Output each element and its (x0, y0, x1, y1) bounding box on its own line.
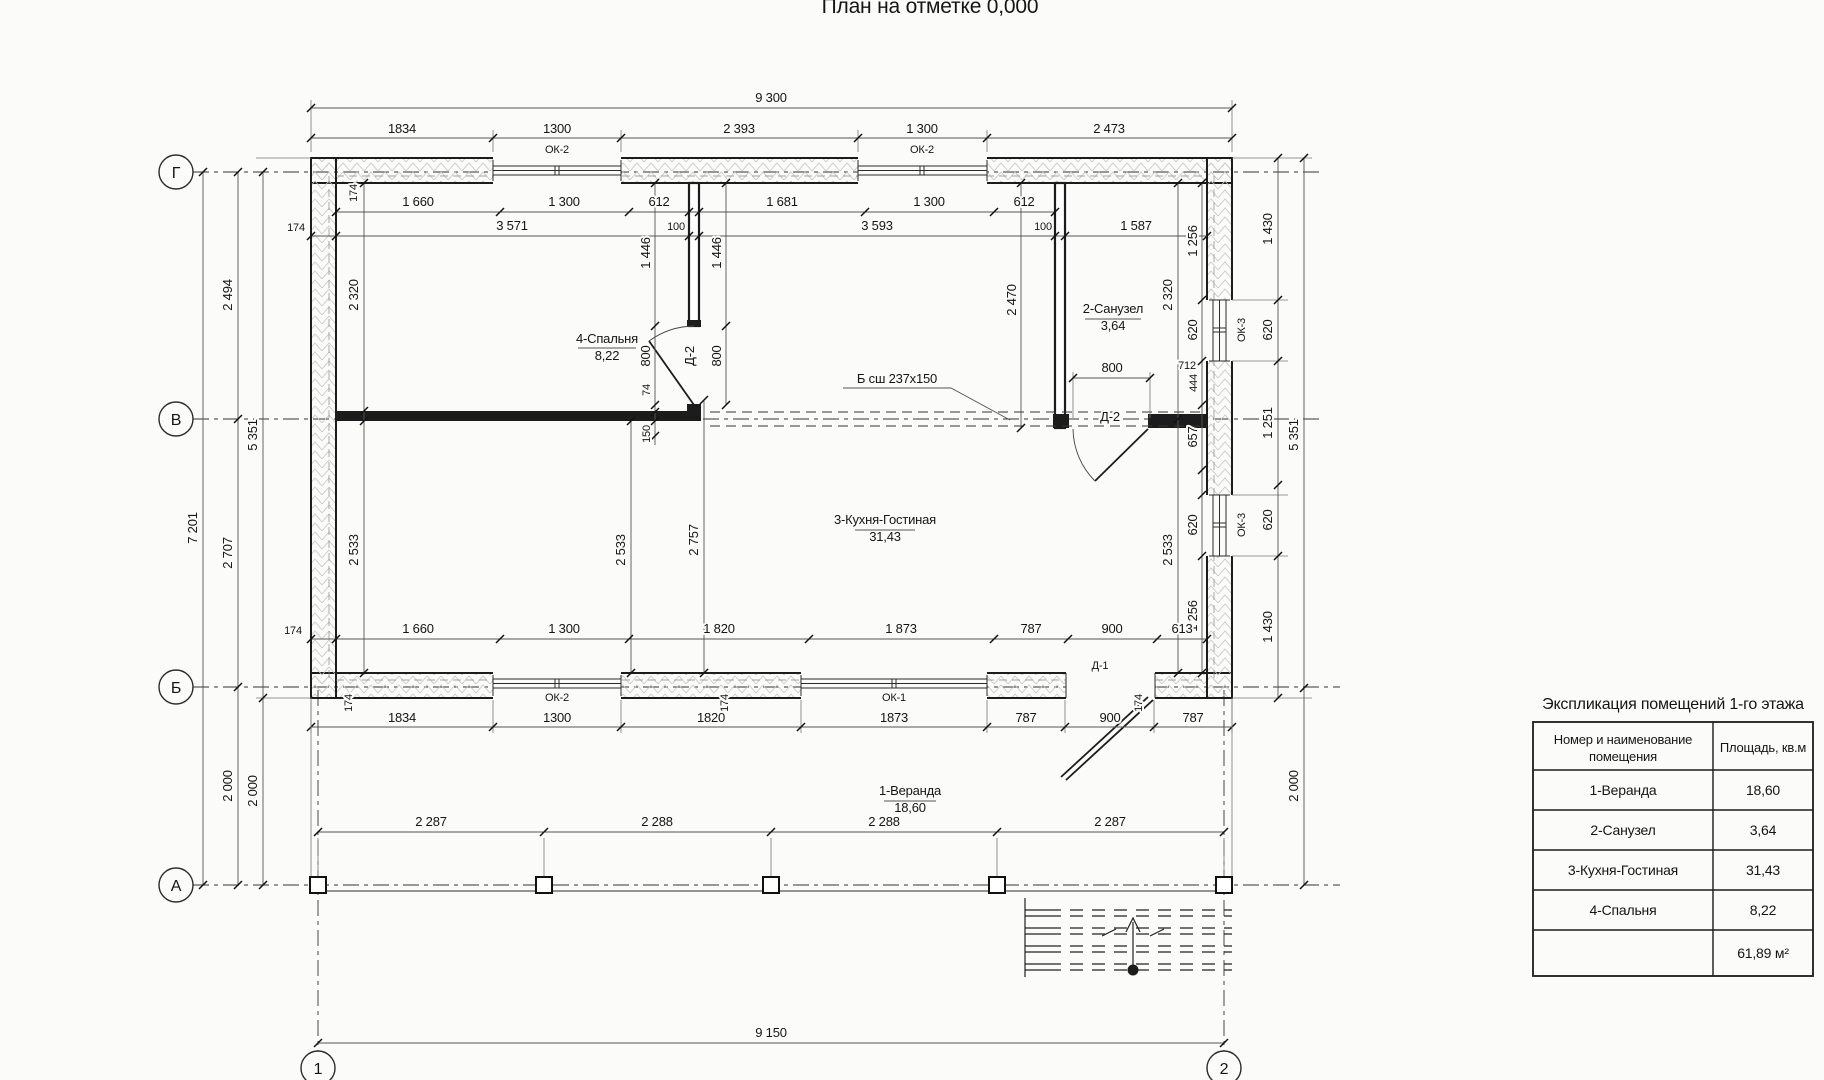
dim-text: 2 393 (723, 121, 755, 136)
dim-text: 2 287 (415, 814, 447, 829)
dim-text: 2 000 (220, 770, 235, 802)
dim-text: 3 593 (861, 218, 893, 233)
room-area-bedroom: 8,22 (595, 348, 620, 363)
dimension-lines (199, 100, 1312, 1047)
table-title: Экспликация помещений 1-го этажа (1542, 696, 1804, 713)
dim-text: 1 430 (1260, 213, 1275, 245)
dim-text: 2 288 (868, 814, 900, 829)
dim-text: 787 (1020, 621, 1041, 636)
room-label-veranda: 1-Веранда (879, 783, 942, 798)
entry-stairs (1025, 898, 1232, 977)
window-tag: ОК-2 (545, 692, 569, 704)
veranda-post (763, 877, 779, 893)
room-area-san: 3,64 (1101, 318, 1126, 333)
dim-text: 1 446 (638, 237, 653, 269)
dim-text: 1834 (388, 710, 416, 725)
dim-text: 900 (1099, 710, 1120, 725)
dim-text: 2 533 (1160, 534, 1175, 566)
axis-label-2: 2 (1220, 1061, 1229, 1078)
dim-text: 174 (287, 222, 305, 234)
partition-axis-v (336, 411, 699, 421)
dim-text: 444 (1188, 374, 1200, 392)
axis-label-g: Г (172, 165, 181, 182)
dim-text: 657 (1185, 426, 1200, 447)
dim-text: 2 494 (220, 279, 235, 311)
table-header-name2: помещения (1589, 749, 1657, 764)
table-cell-area: 3,64 (1750, 822, 1777, 838)
door-d2-san-leaf (1095, 429, 1148, 481)
room-area-kitchen: 31,43 (869, 529, 901, 544)
axis-label-a: А (171, 878, 182, 895)
door-tag: Д-1 (1092, 660, 1109, 672)
table-cell-area: 18,60 (1746, 782, 1780, 798)
veranda-post (1216, 877, 1232, 893)
dim-text: 1 430 (1260, 611, 1275, 643)
dim-text: 1820 (697, 710, 725, 725)
dim-text: 3 571 (496, 218, 528, 233)
room-schedule-table (1533, 722, 1813, 976)
exterior-walls (311, 158, 1232, 698)
door-tag: Д-2 (682, 346, 697, 366)
dim-text: 620 (1185, 514, 1200, 535)
table-cell-area: 8,22 (1750, 902, 1777, 918)
dim-text: 150 (641, 425, 653, 443)
veranda-post (310, 877, 326, 893)
stairs-start-dot (1128, 965, 1139, 976)
dim-text: 174 (1133, 694, 1145, 712)
dim-text: 1 681 (766, 194, 798, 209)
table-header-area: Площадь, кв.м (1720, 740, 1807, 755)
table-cell-name: 1-Веранда (1589, 782, 1656, 798)
door-tag: Д-2 (1100, 409, 1120, 424)
dim-text: 1834 (388, 121, 416, 136)
dim-text: 620 (1260, 509, 1275, 530)
dim-text: 1 300 (913, 194, 945, 209)
windows (493, 160, 1230, 698)
door-d2-san-arc (1073, 429, 1095, 481)
dim-text: 612 (648, 194, 669, 209)
dim-text: 800 (1101, 360, 1122, 375)
dim-text: 1 300 (906, 121, 938, 136)
beam-lines (710, 388, 1207, 426)
dim-text: 174 (348, 184, 360, 202)
dim-text: 74 (641, 384, 653, 396)
sheet-title: План на отметке 0,000 (822, 0, 1039, 18)
dim-text: 1 256 (1185, 225, 1200, 257)
beam-note: Б сш 237x150 (857, 371, 937, 386)
dim-text: 2 757 (686, 524, 701, 556)
dim-text: 1300 (543, 121, 571, 136)
window-tag: ОК-2 (910, 144, 934, 156)
dim-text: 787 (1015, 710, 1036, 725)
floor-plan-drawing: План на отметке 0,000 Г В Б А 1 2 9 300 … (0, 0, 1824, 1080)
window-tag: ОК-2 (545, 144, 569, 156)
partition-san (1055, 183, 1065, 428)
dim-text: 800 (709, 345, 724, 366)
room-label-san: 2-Санузел (1083, 301, 1143, 316)
room-label-bedroom: 4-Спальня (576, 331, 638, 346)
dim-text: 1 660 (402, 621, 434, 636)
dim-text: 2 320 (346, 279, 361, 311)
dim-text: 2 288 (641, 814, 673, 829)
dim-text: 1 300 (548, 194, 580, 209)
dim-text: 174 (343, 694, 355, 712)
dim-text: 1 446 (709, 237, 724, 269)
dim-text: 2 320 (1160, 279, 1175, 311)
dim-text: 712 (1178, 360, 1196, 372)
table-header-name: Номер и наименование (1554, 732, 1692, 747)
stairs-up-arrow (1102, 918, 1164, 970)
dim-text: 1 251 (1260, 407, 1275, 439)
room-area-veranda: 18,60 (894, 800, 926, 815)
window-tag: ОК-3 (1236, 513, 1248, 537)
door-d2-bedroom-arc (649, 326, 694, 341)
table-cell-name: 3-Кухня-Гостиная (1568, 862, 1678, 878)
dim-text: 620 (1185, 319, 1200, 340)
dim-text: 612 (1013, 194, 1034, 209)
partition-bedroom (689, 183, 699, 326)
dim-text: 5 351 (245, 419, 260, 451)
wall-openings (493, 156, 1234, 700)
table-total-area: 61,89 м² (1737, 945, 1789, 961)
beam-leader (843, 388, 1010, 420)
table-cell-name: 4-Спальня (1590, 902, 1657, 918)
table-cell-name: 2-Санузел (1590, 822, 1655, 838)
dim-text: 2 287 (1094, 814, 1126, 829)
dim-text: 1 587 (1120, 218, 1152, 233)
dim-text: 2 533 (613, 534, 628, 566)
dim-text: 9 300 (755, 90, 787, 105)
dim-text: 7 201 (185, 512, 200, 544)
dim-text: 787 (1182, 710, 1203, 725)
dim-text: 2 707 (220, 537, 235, 569)
axis-label-1: 1 (314, 1061, 323, 1078)
dim-text: 2 470 (1004, 284, 1019, 316)
floor-plan-sheet: План на отметке 0,000 Г В Б А 1 2 9 300 … (0, 0, 1824, 1080)
dim-text: 900 (1101, 621, 1122, 636)
dim-text: 5 351 (1286, 419, 1301, 451)
dim-text: 9 150 (755, 1025, 787, 1040)
dim-text: 2 533 (346, 534, 361, 566)
dim-text: 2 000 (245, 775, 260, 807)
table-cell-area: 31,43 (1746, 862, 1780, 878)
dim-text: 2 473 (1093, 121, 1125, 136)
dim-text: 620 (1260, 319, 1275, 340)
axis-label-b: Б (171, 680, 181, 697)
veranda-post (989, 877, 1005, 893)
interior-partitions (336, 183, 1207, 428)
dim-text: 1 300 (548, 621, 580, 636)
dim-text: 1873 (880, 710, 908, 725)
dim-text: 1 820 (703, 621, 735, 636)
dim-text: 174 (284, 625, 302, 637)
dim-text: 2 000 (1286, 770, 1301, 802)
room-label-kitchen: 3-Кухня-Гостиная (834, 512, 936, 527)
dim-text: 1300 (543, 710, 571, 725)
dim-text: 100 (1034, 221, 1052, 233)
veranda-post (536, 877, 552, 893)
window-tag: ОК-1 (882, 692, 906, 704)
dim-text: 613 (1171, 621, 1192, 636)
window-tag: ОК-3 (1236, 318, 1248, 342)
axis-label-v: В (171, 412, 181, 429)
dim-text: 1 660 (402, 194, 434, 209)
dim-text: 100 (667, 221, 685, 233)
dim-text: 1 873 (885, 621, 917, 636)
dim-text: 800 (638, 345, 653, 366)
